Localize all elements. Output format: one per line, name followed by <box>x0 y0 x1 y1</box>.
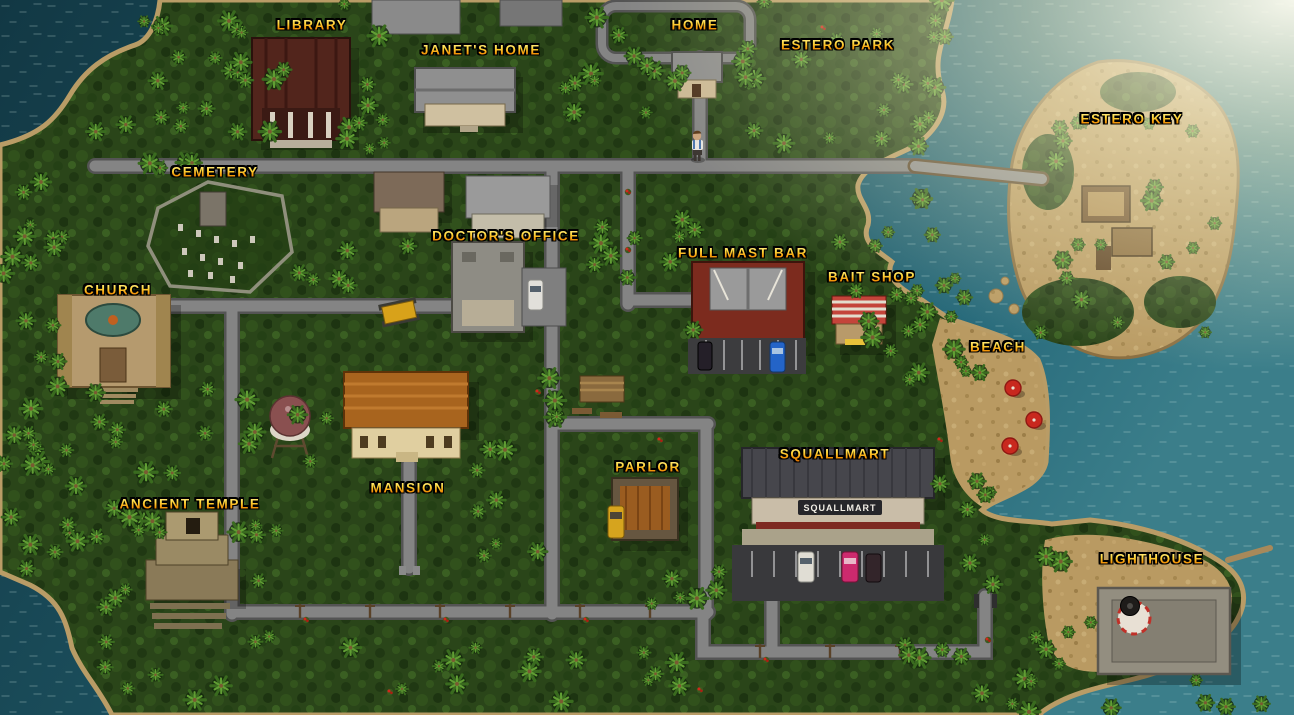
squallmart-sign-text: SQUALLMART <box>804 503 877 513</box>
map-label-bait-shop[interactable]: BAIT SHOP <box>828 270 916 285</box>
map-label-estero-park[interactable]: ESTERO PARK <box>781 38 895 53</box>
map-label-home[interactable]: HOME <box>672 18 719 33</box>
truck-yellow <box>608 506 624 538</box>
car-white <box>798 552 814 582</box>
game-map-screen: SQUALLMART <box>0 0 1294 715</box>
car-dark <box>866 554 881 582</box>
full-mast-bar-building[interactable] <box>688 262 815 374</box>
map-label-parlor[interactable]: PARLOR <box>615 460 681 475</box>
map-label-mansion[interactable]: MANSION <box>371 481 446 496</box>
map-label-lighthouse[interactable]: LIGHTHOUSE <box>1100 552 1205 567</box>
squallmart-building[interactable]: SQUALLMART <box>732 448 945 601</box>
map-label-cemetery[interactable]: CEMETERY <box>171 165 258 180</box>
car-dark <box>698 342 712 370</box>
map-label-squallmart[interactable]: SQUALLMART <box>780 447 891 462</box>
map-label-library[interactable]: LIBRARY <box>277 18 348 33</box>
map-label-church[interactable]: CHURCH <box>84 283 152 298</box>
map-label-beach[interactable]: BEACH <box>970 340 1026 355</box>
island-map: SQUALLMART <box>0 0 1294 715</box>
map-label-janets-home[interactable]: JANET'S HOME <box>421 43 541 58</box>
janets-home-building[interactable] <box>415 68 523 133</box>
parlor-building[interactable] <box>608 478 688 551</box>
car-pink <box>842 552 858 582</box>
map-label-full-mast-bar[interactable]: FULL MAST BAR <box>678 246 808 261</box>
car-white <box>528 280 543 310</box>
map-label-estero-key[interactable]: ESTERO KEY <box>1080 112 1183 127</box>
church-building[interactable] <box>58 295 181 402</box>
car-blue <box>770 342 785 372</box>
map-label-doctors-office[interactable]: DOCTOR'S OFFICE <box>432 229 580 244</box>
map-label-ancient-temple[interactable]: ANCIENT TEMPLE <box>120 497 261 512</box>
